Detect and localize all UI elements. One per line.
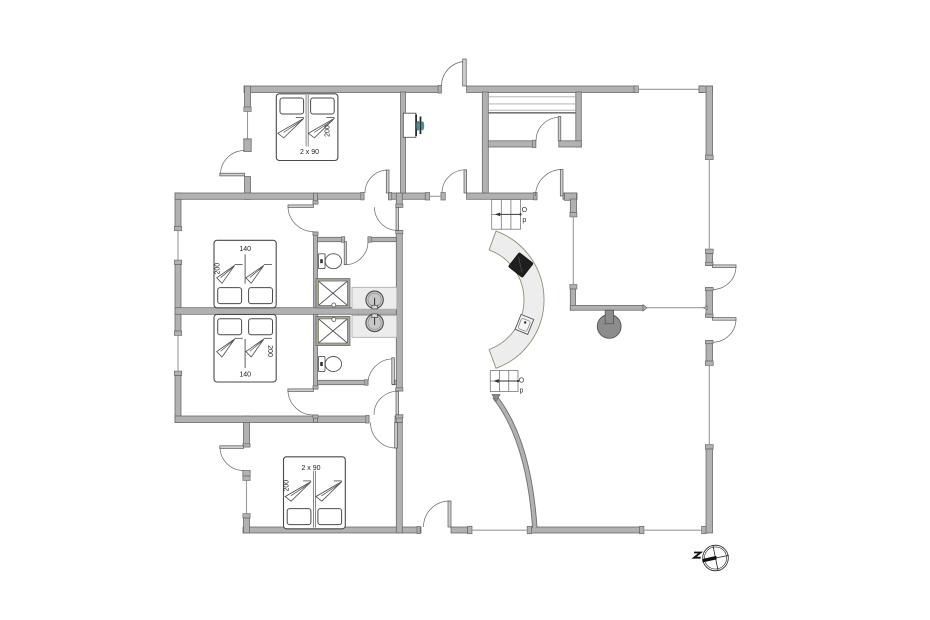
svg-text:p: p [520,388,524,395]
svg-text:O: O [519,378,525,385]
svg-text:140: 140 [239,246,251,253]
svg-text:200: 200 [266,345,273,357]
svg-text:200: 200 [215,263,222,275]
svg-text:p: p [522,217,526,224]
svg-text:O: O [522,207,528,214]
svg-text:200: 200 [284,480,291,492]
svg-text:2 x 90: 2 x 90 [300,149,319,156]
svg-text:200: 200 [325,125,332,137]
svg-text:140: 140 [239,372,251,379]
svg-text:2 x 90: 2 x 90 [301,465,320,472]
